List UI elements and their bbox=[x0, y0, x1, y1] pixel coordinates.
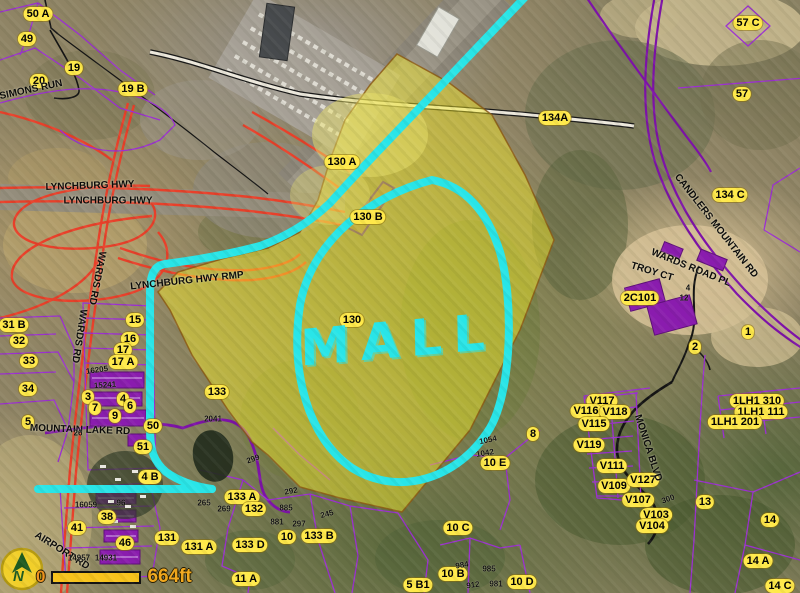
parcel-label: 41 bbox=[68, 521, 86, 535]
parcel-label: 130 A bbox=[325, 155, 360, 169]
parcel-label: 46 bbox=[116, 536, 134, 550]
parcel-label: 4 B bbox=[138, 470, 161, 484]
address-label: 14957 bbox=[68, 554, 90, 563]
parcel-label: 2 bbox=[689, 340, 701, 354]
parcel-label: 1LH1 201 bbox=[708, 415, 762, 429]
address-label: 292 bbox=[284, 485, 299, 496]
parcel-label: 10 E bbox=[481, 456, 510, 470]
parcel-label: 130 B bbox=[350, 210, 385, 224]
address-label: 26 bbox=[74, 429, 83, 438]
parcel-label: 133 D bbox=[232, 538, 267, 552]
parcel-label: 32 bbox=[10, 334, 28, 348]
parcel-label: 17 A bbox=[109, 355, 138, 369]
parcel-label: V111 bbox=[597, 459, 627, 473]
parcel-label: 131 A bbox=[182, 540, 217, 554]
parcel-label: 13 bbox=[696, 495, 714, 509]
parcel-label: 131 bbox=[155, 531, 179, 545]
road-label: LYNCHBURG HWY bbox=[63, 196, 152, 207]
parcel-label: 133 B bbox=[301, 529, 336, 543]
parcel-label: 14 A bbox=[744, 554, 773, 568]
parcel-label: 134 C bbox=[712, 188, 747, 202]
address-label: 984 bbox=[455, 559, 470, 570]
address-label: 245 bbox=[319, 508, 334, 520]
address-label: 14931 bbox=[95, 554, 117, 563]
address-label: 265 bbox=[197, 499, 210, 508]
address-label: 981 bbox=[489, 580, 502, 589]
address-label: 16205 bbox=[85, 364, 108, 376]
parcel-label: V109 bbox=[598, 479, 630, 493]
parcel-label: 6 bbox=[124, 399, 136, 413]
parcel-label: V116 bbox=[570, 404, 601, 418]
address-label: 2041 bbox=[204, 415, 222, 424]
parcel-label: 10 D bbox=[507, 575, 536, 589]
parcel-label: 7 bbox=[89, 401, 101, 415]
parcel-label: V104 bbox=[636, 519, 668, 533]
scalebar-zero: 0 bbox=[36, 567, 45, 587]
parcel-label: 57 C bbox=[733, 16, 762, 30]
gis-map-viewport[interactable]: 50 A49192019 B57 C57134A130 A130 B134 C2… bbox=[0, 0, 800, 593]
address-label: 300 bbox=[660, 492, 676, 505]
parcel-label: V119 bbox=[573, 438, 604, 452]
parcel-label: 15 bbox=[126, 313, 144, 327]
road-label: WARDS RD bbox=[69, 308, 88, 364]
parcel-label: 2C101 bbox=[621, 291, 659, 305]
parcel-label: 9 bbox=[109, 409, 121, 423]
parcel-label: 57 bbox=[733, 87, 751, 101]
address-label: 15241 bbox=[94, 380, 117, 391]
parcel-label: 38 bbox=[98, 510, 116, 524]
address-label: 12 bbox=[680, 294, 689, 303]
road-label: LYNCHBURG HWY RMP bbox=[130, 270, 244, 293]
road-label: WARDS RD bbox=[86, 250, 107, 306]
scalebar-bar bbox=[51, 571, 141, 584]
parcel-label: V107 bbox=[622, 493, 654, 507]
address-label: 912 bbox=[466, 580, 480, 591]
parcel-label: 10 C bbox=[443, 521, 472, 535]
parcel-label: 11 A bbox=[232, 572, 260, 586]
road-label: WARDS ROAD PL bbox=[650, 247, 733, 289]
parcel-label: 14 bbox=[761, 513, 779, 527]
parcel-label: 19 B bbox=[118, 82, 147, 96]
map-labels-layer: 50 A49192019 B57 C57134A130 A130 B134 C2… bbox=[0, 0, 800, 593]
parcel-label: 19 bbox=[65, 61, 83, 75]
address-label: 96 bbox=[117, 499, 126, 508]
parcel-label: 33 bbox=[20, 354, 38, 368]
parcel-label: 1 bbox=[742, 325, 754, 339]
parcel-label: 10 bbox=[278, 530, 296, 544]
parcel-label: V115 bbox=[578, 417, 609, 431]
address-label: 299 bbox=[245, 452, 261, 465]
scale-bar: 0 664ft bbox=[36, 566, 192, 588]
parcel-label: 14 C bbox=[765, 579, 794, 593]
parcel-label: 31 B bbox=[0, 318, 29, 332]
parcel-label: 134A bbox=[539, 111, 571, 125]
parcel-label: 5 B1 bbox=[403, 578, 432, 592]
address-label: 1054 bbox=[478, 434, 497, 447]
address-label: 4 bbox=[686, 284, 690, 293]
parcel-label: 51 bbox=[134, 440, 152, 454]
address-label: 269 bbox=[217, 505, 230, 514]
parcel-label: 133 bbox=[205, 385, 229, 399]
scalebar-distance: 664ft bbox=[147, 566, 191, 588]
road-label: LYNCHBURG HWY bbox=[45, 179, 134, 193]
address-label: 16059 bbox=[75, 501, 97, 510]
parcel-label: 132 bbox=[242, 502, 266, 516]
parcel-label: 34 bbox=[19, 382, 37, 396]
address-label: 297 bbox=[292, 520, 305, 529]
parcel-label: 8 bbox=[527, 427, 539, 441]
parcel-label: 50 bbox=[144, 419, 162, 433]
north-letter: N bbox=[13, 568, 24, 585]
address-label: 881 bbox=[270, 518, 283, 527]
parcel-label: 49 bbox=[18, 32, 36, 46]
address-label: 985 bbox=[482, 565, 495, 574]
address-label: 885 bbox=[279, 504, 292, 513]
parcel-label: 50 A bbox=[24, 7, 53, 21]
